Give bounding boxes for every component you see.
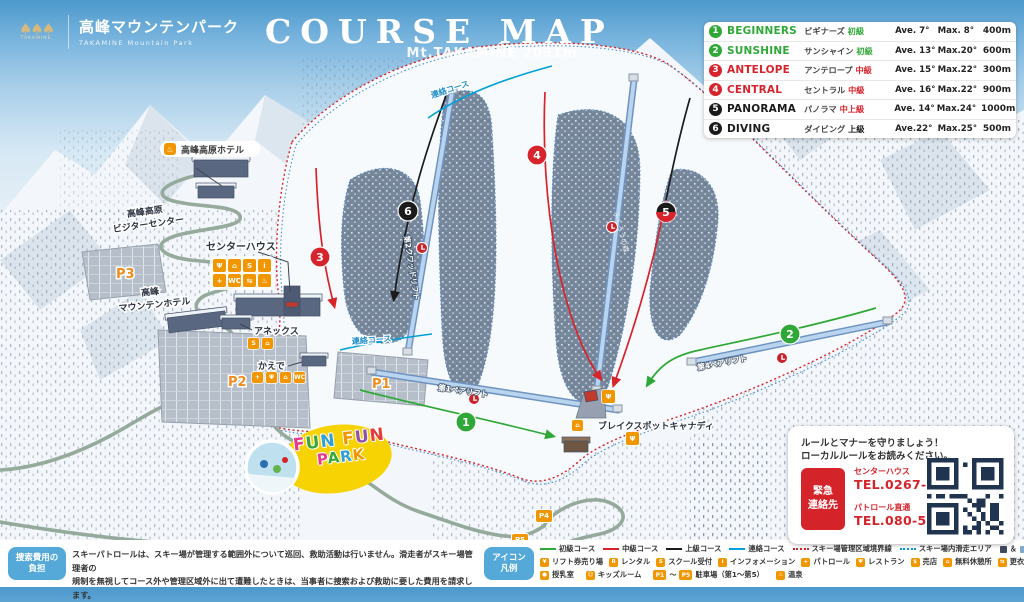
legend-icon-item: ¥リフト券売り場 bbox=[540, 557, 603, 567]
course-name-jp: サンシャイン 初級 bbox=[804, 45, 895, 57]
facility-icon: WC bbox=[294, 372, 305, 383]
course-number-badge: 4 bbox=[709, 83, 722, 96]
kaede-icons: +Ψ⌂WC bbox=[252, 372, 305, 383]
course-max-slope: Max.24° bbox=[937, 104, 981, 114]
legend-icon-item: ●授乳室 bbox=[540, 570, 574, 580]
legend-icons-row: ¥リフト券売り場RレンタルSスクール受付iインフォメーション+パトロールΨレスト… bbox=[540, 557, 1024, 567]
notice-line2: 規制を無視してコース外や管理区域外に出て遭難したときは、当事者に捜索および救助に… bbox=[72, 575, 476, 602]
course-max-slope: Max.22° bbox=[938, 85, 982, 95]
header-divider bbox=[68, 15, 69, 49]
course-row: 1BEGINNERSビギナーズ 初級Ave. 7°Max. 8°400m bbox=[704, 22, 1016, 42]
facility-icon: Ψ bbox=[602, 390, 615, 403]
legend-line-item: スキー場管理区域境界線 bbox=[793, 544, 892, 554]
course-name-jp: ビギナーズ 初級 bbox=[804, 25, 895, 37]
facility-icon: S bbox=[243, 259, 256, 272]
legend-line-item: 中級コース bbox=[603, 544, 658, 554]
legend-icon-item: ☺キッズルーム bbox=[586, 570, 642, 580]
kaede-label: かえで bbox=[258, 361, 285, 372]
legend-icon-item: Ψレストラン bbox=[856, 557, 904, 567]
legend-icon: Ψ bbox=[856, 558, 865, 567]
course-name-jp: パノラマ 中上級 bbox=[804, 103, 894, 115]
course-avg-slope: Ave. 13° bbox=[895, 46, 938, 56]
course-number-badge: 2 bbox=[709, 44, 722, 57]
legend-icon: ¥ bbox=[540, 558, 549, 567]
facility-icon: ⇆ bbox=[243, 274, 256, 287]
facility-icon: Ψ bbox=[213, 259, 226, 272]
center-house-label: センターハウス bbox=[206, 241, 276, 253]
park-name-jp: 高峰マウンテンパーク bbox=[79, 16, 239, 37]
facility-icon: S bbox=[248, 338, 259, 349]
legend-icons-row2: ●授乳室☺キッズルームP1〜P5駐車場（第1～第5）♨温泉 bbox=[540, 570, 803, 580]
course-length: 900m bbox=[982, 85, 1011, 95]
course-table: 1BEGINNERSビギナーズ 初級Ave. 7°Max. 8°400m2SUN… bbox=[704, 22, 1016, 138]
course-length: 300m bbox=[982, 65, 1011, 75]
legend-icon-item: Sスクール受付 bbox=[656, 557, 712, 567]
no-entry-swatch-blue bbox=[1020, 546, 1024, 553]
course-row: 4CENTRALセントラル 中級Ave. 16°Max.22°900m bbox=[704, 81, 1016, 101]
course-name: CENTRAL bbox=[727, 84, 804, 96]
facility-icon: ⌂ bbox=[572, 420, 583, 431]
legend-badge-line2: 凡例 bbox=[500, 564, 517, 575]
emergency-badge-line2: 連絡先 bbox=[808, 499, 838, 513]
notice-line1: スキーパトロールは、スキー場が管理する範囲外について巡回、救助活動は行いません。… bbox=[72, 548, 476, 575]
legend-icon: R bbox=[609, 558, 618, 567]
course-row: 2SUNSHINEサンシャイン 初級Ave. 13°Max.20°600m bbox=[704, 42, 1016, 62]
emergency-badge-line1: 緊急 bbox=[813, 485, 833, 499]
legend-badge: アイコン 凡例 bbox=[484, 547, 534, 580]
course-row: 5PANORAMAパノラマ 中上級Ave. 14°Max.24°1000m bbox=[704, 100, 1016, 120]
header: ♠♠♠ TAKAMINE 高峰マウンテンパーク TAKAMINE Mountai… bbox=[14, 12, 614, 51]
course-avg-slope: Ave. 7° bbox=[895, 26, 938, 36]
parking-p4-chip: P4 bbox=[536, 510, 552, 522]
facility-icon: Ψ bbox=[626, 432, 639, 445]
marker-6: 6 bbox=[404, 205, 412, 218]
marker-2: 2 bbox=[786, 328, 794, 341]
break-spot-icon-3: ⌂ bbox=[572, 420, 583, 431]
course-name-jp: セントラル 中級 bbox=[804, 84, 895, 96]
legend-icon: S bbox=[656, 558, 665, 567]
course-avg-slope: Ave. 16° bbox=[895, 85, 938, 95]
legend-icon: ☺ bbox=[586, 571, 595, 580]
course-number-badge: 5 bbox=[709, 103, 722, 116]
course-number-badge: 1 bbox=[709, 25, 722, 38]
notice-badge-line2: 負担 bbox=[28, 564, 45, 575]
facility-icon: WC bbox=[228, 274, 241, 287]
legend-icon-item: Rレンタル bbox=[609, 557, 650, 567]
course-length: 500m bbox=[982, 124, 1011, 134]
course-name-jp: ダイビング 上級 bbox=[804, 123, 895, 135]
logo-mark-text: TAKAMINE bbox=[14, 36, 58, 41]
break-spot-icon-1: Ψ bbox=[602, 390, 615, 403]
legend-no-entry-item: ＆立入禁止（コース外） bbox=[1000, 544, 1024, 554]
course-avg-slope: Ave. 15° bbox=[895, 65, 938, 75]
takamine-logo: ♠♠♠ TAKAMINE bbox=[14, 22, 58, 41]
facility-icon: Ψ bbox=[266, 372, 277, 383]
page-title: COURSE MAP bbox=[265, 12, 614, 51]
course-name: PANORAMA bbox=[727, 103, 804, 115]
qr-code bbox=[927, 458, 1005, 536]
tree-logo-icon: ♠♠♠ bbox=[14, 22, 58, 36]
legend-icon-item: ♨温泉 bbox=[776, 570, 803, 580]
line-swatch bbox=[666, 548, 682, 550]
course-number-badge: 3 bbox=[709, 64, 722, 77]
course-max-slope: Max. 8° bbox=[938, 26, 982, 36]
legend-lines-row: 初級コース中級コース上級コース連絡コーススキー場管理区域境界線スキー場内滑走エリ… bbox=[540, 544, 1024, 554]
legend-icon: i bbox=[718, 558, 727, 567]
legend-icon: $ bbox=[911, 558, 920, 567]
legend-line-item: 初級コース bbox=[540, 544, 595, 554]
line-swatch bbox=[540, 548, 556, 550]
line-swatch bbox=[729, 548, 745, 550]
legend-line-item: 上級コース bbox=[666, 544, 721, 554]
course-max-slope: Max.20° bbox=[938, 46, 982, 56]
facility-icon: ⌂ bbox=[228, 259, 241, 272]
course-name: ANTELOPE bbox=[727, 64, 804, 76]
onsen-icon: ♨ bbox=[166, 145, 173, 154]
course-length: 400m bbox=[982, 26, 1011, 36]
parking-p2-label: P2 bbox=[228, 375, 247, 390]
park-name-en: TAKAMINE Mountain Park bbox=[79, 39, 239, 47]
legend-badge-line1: アイコン bbox=[492, 553, 526, 564]
break-spot-label: ブレイクスポットキャナディ bbox=[598, 420, 714, 432]
annex-label: アネックス bbox=[254, 326, 299, 337]
marker-5: 5 bbox=[662, 206, 670, 219]
hotel-chip: ♨ 高峰高原ホテル bbox=[160, 141, 260, 157]
legend-icon: ⇆ bbox=[998, 558, 1007, 567]
legend-icon-item: iインフォメーション bbox=[718, 557, 795, 567]
facility-icon: i bbox=[258, 259, 271, 272]
legend-icon-item: ⇆更衣室 bbox=[998, 557, 1024, 567]
legend-icon: ● bbox=[540, 571, 549, 580]
legend-icon: ♨ bbox=[776, 571, 785, 580]
marker-3: 3 bbox=[316, 251, 324, 264]
emergency-badge: 緊急 連絡先 bbox=[801, 468, 845, 530]
center-house-icons: Ψ⌂Si+WC⇆♨ bbox=[210, 256, 274, 290]
legend-icon-item: +パトロール bbox=[801, 557, 850, 567]
hotel-label: 高峰高原ホテル bbox=[181, 144, 244, 156]
parking-p3-label: P3 bbox=[116, 267, 135, 282]
course-name: SUNSHINE bbox=[727, 45, 804, 57]
line-swatch bbox=[603, 548, 619, 550]
course-max-slope: Max.22° bbox=[938, 65, 982, 75]
facility-icon: ♨ bbox=[258, 274, 271, 287]
notice-badge-line1: 捜索費用の bbox=[16, 553, 59, 564]
course-name: BEGINNERS bbox=[727, 25, 804, 37]
line-swatch bbox=[900, 548, 916, 550]
no-entry-swatch-dark bbox=[1000, 546, 1007, 553]
parking-p1-label: P1 bbox=[372, 377, 391, 392]
facility-icon: ⌂ bbox=[280, 372, 291, 383]
marker-1: 1 bbox=[462, 416, 470, 429]
legend-line-item: 連絡コース bbox=[729, 544, 784, 554]
course-map-page: P3 P2 P1 bbox=[0, 0, 1024, 587]
legend-icon: ⌂ bbox=[943, 558, 952, 567]
legend-icon: + bbox=[801, 558, 810, 567]
course-number-badge: 6 bbox=[709, 122, 722, 135]
marker-4: 4 bbox=[533, 149, 541, 162]
rules-line1: ルールとマナーを守りましょう！ bbox=[801, 435, 944, 449]
legend-icon-item: P1〜P5駐車場（第1～第5） bbox=[653, 570, 764, 580]
legend-icon-item: $売店 bbox=[911, 557, 938, 567]
legend-line-item: スキー場内滑走エリア bbox=[900, 544, 992, 554]
bottom-bar: 捜索費用の 負担 スキーパトロールは、スキー場が管理する範囲外について巡回、救助… bbox=[0, 540, 1024, 587]
course-length: 1000m bbox=[981, 104, 1011, 114]
course-max-slope: Max.25° bbox=[938, 124, 982, 134]
facility-icon: ⌂ bbox=[262, 338, 273, 349]
facility-icon: + bbox=[213, 274, 226, 287]
course-avg-slope: Ave.22° bbox=[895, 124, 938, 134]
course-avg-slope: Ave. 14° bbox=[894, 104, 936, 114]
legend-icon-item: ⌂無料休憩所 bbox=[943, 557, 991, 567]
notice-badge: 捜索費用の 負担 bbox=[8, 547, 66, 580]
line-swatch bbox=[793, 548, 809, 550]
course-row: 6DIVINGダイビング 上級Ave.22°Max.25°500m bbox=[704, 120, 1016, 139]
course-name: DIVING bbox=[727, 123, 804, 135]
break-spot-icon-2: Ψ bbox=[626, 432, 639, 445]
emergency-box: ルールとマナーを守りましょう！ ローカルルールをお読みください。 緊急 連絡先 … bbox=[788, 426, 1014, 544]
facility-icon: + bbox=[252, 372, 263, 383]
notice-text: スキーパトロールは、スキー場が管理する範囲外について巡回、救助活動は行いません。… bbox=[72, 548, 476, 602]
course-length: 600m bbox=[982, 46, 1011, 56]
course-row: 3ANTELOPEアンテロープ 中級Ave. 15°Max.22°300m bbox=[704, 61, 1016, 81]
annex-icons: S⌂ bbox=[248, 338, 273, 349]
course-name-jp: アンテロープ 中級 bbox=[804, 64, 895, 76]
